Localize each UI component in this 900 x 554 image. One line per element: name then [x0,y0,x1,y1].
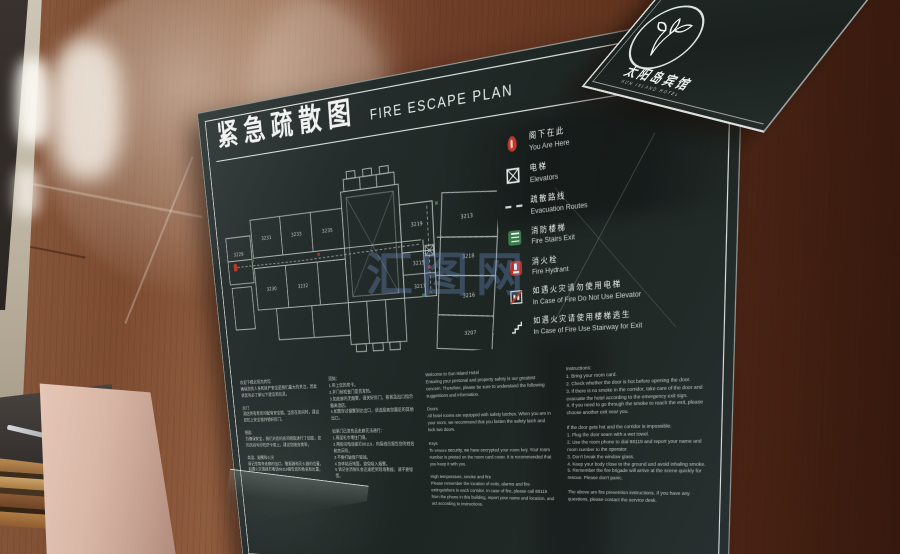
room-number: 3219 [411,220,423,229]
room-number: 3231 [261,235,272,243]
photo-watermark: 汇图网 [366,236,531,305]
photo-of-fire-escape-sign: 紧急疏散图 FIRE ESCAPE PLAN [0,0,900,554]
column-en-instructions: Instructions: 1. Bring your room card. 2… [566,359,713,513]
you-are-here-icon [503,135,521,153]
room-number: 3213 [460,212,473,221]
stairway-exit-icon [509,319,526,334]
elevator-icon [504,167,522,185]
room-number: 3235 [322,227,334,235]
wall-window-glare [16,58,50,144]
column-en-info: Welcome to Sun Island Hotel Ensuring you… [425,367,555,510]
you-are-here-marker [233,264,237,272]
room-number: 3207 [464,329,477,337]
room-number: 3230 [266,286,277,293]
legend-item-use-stairway: 如遇火灾请使用楼梯逃生 In Case of Fire Use Stairway… [509,305,716,338]
room-number: 3229 [233,251,244,259]
legend-label-en: Fire Hydrant [532,266,569,278]
wall-window-glare-2 [14,168,40,216]
room-number: 3232 [297,283,308,290]
legend-item-no-elevator: 如遇火灾请勿使用电梯 In Case of Fire Do Not Use El… [508,273,717,310]
room-number: 3233 [291,231,302,239]
evacuation-route-icon [505,198,522,208]
